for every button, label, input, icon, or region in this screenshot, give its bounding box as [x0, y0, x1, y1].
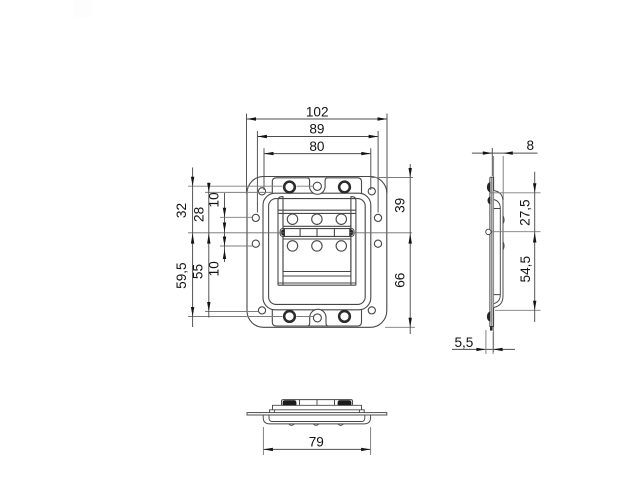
svg-text:28: 28	[191, 207, 206, 222]
svg-text:10: 10	[206, 192, 221, 208]
svg-text:5,5: 5,5	[454, 335, 473, 350]
svg-text:10: 10	[206, 261, 221, 277]
svg-text:27,5: 27,5	[517, 199, 532, 225]
svg-text:89: 89	[309, 122, 324, 137]
svg-text:39: 39	[393, 198, 408, 213]
svg-text:102: 102	[306, 104, 329, 119]
svg-text:80: 80	[309, 139, 325, 154]
svg-text:54,5: 54,5	[518, 256, 533, 282]
svg-text:32: 32	[174, 203, 189, 218]
svg-text:66: 66	[392, 273, 407, 288]
svg-text:8: 8	[527, 138, 535, 153]
svg-text:79: 79	[309, 434, 324, 449]
svg-text:55: 55	[191, 264, 206, 279]
svg-text:59,5: 59,5	[174, 262, 189, 288]
